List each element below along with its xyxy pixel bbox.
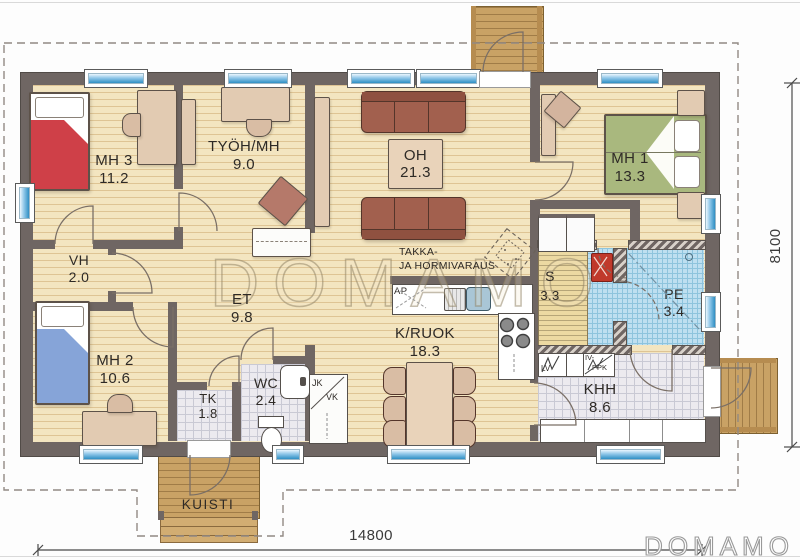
window-glass bbox=[228, 73, 288, 84]
room-label-tk: TK 1.8 bbox=[186, 391, 230, 422]
cabinet-oh bbox=[314, 97, 330, 227]
room-label-mh3: MH 3 11.2 bbox=[84, 152, 144, 187]
window-glass bbox=[391, 449, 466, 460]
blanket-fold bbox=[64, 120, 88, 144]
coffee-table: OH 21.3 bbox=[388, 139, 443, 189]
sofa-backrest bbox=[362, 229, 465, 239]
porch-door-threshold bbox=[187, 440, 231, 458]
room-name: MH 3 bbox=[84, 152, 144, 170]
room-area: 21.3 bbox=[400, 164, 431, 181]
chair-mh3 bbox=[122, 113, 141, 137]
watermark-logo: DOMAMO bbox=[644, 531, 794, 560]
dining-chair bbox=[453, 420, 476, 448]
washing-machine-label: PPK bbox=[592, 364, 612, 373]
wall bbox=[93, 240, 174, 249]
dining-chair bbox=[383, 420, 406, 448]
room-area: 10.6 bbox=[85, 370, 145, 388]
room-area: 1.8 bbox=[186, 406, 230, 421]
bookshelf-tyoh bbox=[181, 99, 196, 165]
sofa-bottom bbox=[361, 197, 466, 240]
window bbox=[416, 69, 481, 88]
fridge-label: JK bbox=[312, 378, 328, 389]
window bbox=[701, 194, 721, 234]
pillow bbox=[674, 120, 700, 152]
counter-divider bbox=[584, 420, 585, 442]
pillow bbox=[674, 156, 700, 188]
room-name: MH 1 bbox=[600, 150, 660, 168]
porch-step bbox=[160, 535, 258, 543]
kitchen-counter-side bbox=[498, 313, 535, 380]
window-glass bbox=[420, 73, 477, 84]
window-glass bbox=[83, 449, 139, 460]
page-top-rule bbox=[0, 2, 800, 3]
room-label-tyoh: TYÖH/MH 9.0 bbox=[204, 138, 284, 173]
deck-rail bbox=[537, 6, 542, 72]
window bbox=[387, 445, 470, 464]
dimension-width-line bbox=[33, 544, 707, 556]
room-label-vh: VH 2.0 bbox=[55, 252, 103, 285]
sofa-top bbox=[361, 91, 466, 133]
room-area-sauna: 3.3 bbox=[534, 288, 566, 303]
wall bbox=[108, 249, 116, 255]
window-glass bbox=[351, 73, 411, 84]
counter-divider bbox=[629, 420, 630, 442]
room-name: TYÖH/MH bbox=[204, 138, 284, 156]
desk-mh2 bbox=[82, 411, 157, 446]
wall bbox=[630, 209, 640, 240]
entrance-deck-top bbox=[471, 6, 544, 74]
desk-tyoh bbox=[221, 87, 290, 122]
window bbox=[272, 445, 304, 464]
window bbox=[596, 445, 665, 464]
room-label-mh1: MH 1 13.3 bbox=[600, 150, 660, 185]
note-line2: JA HORMIVARAUS bbox=[399, 260, 511, 274]
room-name: TK bbox=[186, 391, 230, 406]
wet-area-wall bbox=[628, 240, 706, 250]
chair-tyoh bbox=[246, 119, 272, 137]
window bbox=[224, 69, 292, 88]
room-area: 18.3 bbox=[389, 343, 461, 361]
pillow bbox=[41, 306, 84, 327]
utility-counter bbox=[540, 419, 706, 443]
window bbox=[701, 292, 721, 332]
dishwasher-label: AP bbox=[394, 286, 418, 297]
room-area: 11.2 bbox=[84, 170, 144, 188]
wall bbox=[168, 302, 177, 311]
room-name: S bbox=[538, 268, 562, 285]
note-line1: TAKKA- bbox=[399, 246, 511, 260]
blanket-fold bbox=[64, 329, 88, 353]
window bbox=[84, 69, 148, 88]
pillow bbox=[35, 97, 84, 118]
room-name: VH bbox=[55, 252, 103, 269]
main-entrance-threshold bbox=[479, 71, 531, 88]
floor-plan-canvas: OH 21.3 MH 3 11.2 TYÖH/MH bbox=[0, 0, 800, 560]
room-name: WC bbox=[242, 375, 290, 392]
wall bbox=[174, 227, 183, 249]
utility-door-threshold bbox=[703, 366, 721, 417]
wall bbox=[232, 382, 241, 441]
wet-area-wall bbox=[613, 321, 627, 347]
window-glass bbox=[19, 187, 30, 219]
window-glass bbox=[600, 449, 661, 460]
wall bbox=[177, 382, 207, 390]
room-label-sauna: S bbox=[538, 268, 562, 285]
window-glass bbox=[705, 296, 716, 328]
window-glass bbox=[705, 198, 716, 230]
window bbox=[15, 183, 35, 223]
window-glass bbox=[276, 449, 300, 460]
dimension-height-line bbox=[784, 78, 800, 452]
room-name: OH bbox=[404, 147, 427, 164]
room-name: K/RUOK bbox=[389, 325, 461, 343]
room-name: PE bbox=[646, 286, 702, 303]
single-bed-mh2 bbox=[35, 301, 90, 405]
dining-chair bbox=[453, 367, 476, 395]
nightstand bbox=[677, 90, 705, 116]
room-name: MH 2 bbox=[85, 352, 145, 370]
wall bbox=[530, 200, 640, 209]
room-name: ET bbox=[218, 291, 266, 309]
wet-area-wall bbox=[613, 248, 627, 283]
window bbox=[79, 445, 143, 464]
dining-table bbox=[406, 362, 453, 448]
ventilation-label: IV- bbox=[585, 354, 601, 363]
room-name: KHH bbox=[572, 381, 628, 399]
counter-divider bbox=[662, 420, 663, 442]
window-glass bbox=[88, 73, 144, 84]
dimension-height-label: 8100 bbox=[767, 216, 783, 276]
freezer-label: VK bbox=[326, 392, 342, 403]
dining-chair bbox=[383, 367, 406, 395]
window-glass bbox=[601, 73, 659, 84]
room-area: 8.6 bbox=[572, 399, 628, 417]
deck-rail bbox=[471, 6, 476, 72]
room-label-kuisti: KUISTI bbox=[160, 497, 256, 513]
wall bbox=[530, 85, 540, 162]
wall bbox=[168, 311, 177, 441]
wet-area-wall bbox=[672, 345, 706, 355]
wall bbox=[530, 425, 538, 441]
room-area: 13.3 bbox=[600, 168, 660, 186]
fireplace-reservation-note: TAKKA- JA HORMIVARAUS bbox=[399, 246, 511, 273]
room-label-pe: PE 3.4 bbox=[646, 286, 702, 319]
room-label-mh2: MH 2 10.6 bbox=[85, 352, 145, 387]
dimension-width-label: 14800 bbox=[336, 527, 406, 545]
room-area: 2.4 bbox=[242, 392, 290, 409]
room-label-et: ET 9.8 bbox=[218, 291, 266, 326]
wc-faucet bbox=[300, 377, 306, 386]
room-label-khh: KHH 8.6 bbox=[572, 381, 628, 416]
window bbox=[347, 69, 415, 88]
room-label-kruok: K/RUOK 18.3 bbox=[389, 325, 461, 360]
room-area: 2.0 bbox=[55, 269, 103, 286]
sofa-backrest bbox=[362, 92, 465, 102]
room-label-wc: WC 2.4 bbox=[242, 375, 290, 408]
chair-mh2 bbox=[107, 394, 133, 413]
room-area: 3.4 bbox=[646, 303, 702, 320]
wall bbox=[33, 240, 55, 249]
room-area: 9.0 bbox=[204, 156, 284, 174]
room-name: KUISTI bbox=[160, 497, 256, 513]
window bbox=[597, 69, 663, 88]
dash-detail bbox=[256, 241, 307, 242]
room-area: 9.8 bbox=[218, 309, 266, 327]
water-heater-label: LV bbox=[541, 364, 557, 373]
room-area: 3.3 bbox=[534, 288, 566, 303]
single-bed-mh3 bbox=[29, 92, 90, 191]
